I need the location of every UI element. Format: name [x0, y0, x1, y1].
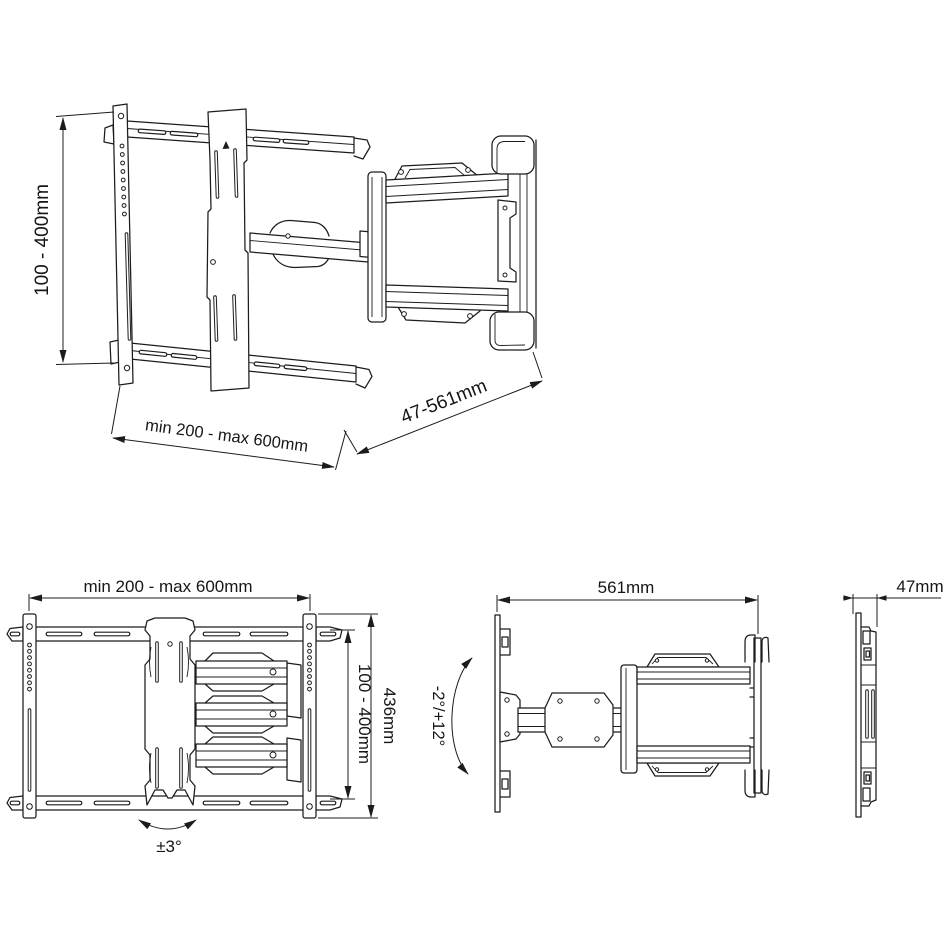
mounting-hole	[307, 804, 313, 810]
rail-end-tab	[356, 367, 372, 388]
dim-label-width-range: min 200 - max 600mm	[144, 416, 309, 456]
arm-link	[287, 663, 301, 718]
clip-detail	[863, 788, 870, 801]
bracket-bar-bottom	[637, 746, 750, 763]
dim-label-height-range: 100 - 400mm	[32, 184, 53, 296]
dim-max-extension: 561mm	[497, 578, 758, 634]
clamp-upper	[270, 220, 329, 236]
wall-mount-dimension-diagram: 100 - 400mm min 200 - max 600mm 47-561mm	[0, 0, 952, 952]
dim-extension-range: 47-561mm	[344, 352, 542, 454]
wall-plate-assembly	[490, 136, 536, 350]
dim-label-swivel: -2°/+12°	[429, 686, 447, 746]
swivel-arm	[518, 665, 637, 773]
clip-detail	[863, 631, 870, 644]
bolt	[286, 234, 290, 238]
wall-rail-bottom	[130, 343, 372, 388]
swivel-annotation: -2°/+12°	[429, 658, 472, 774]
mounting-hole	[307, 624, 313, 630]
wall-rail-top	[127, 121, 370, 159]
arm-column	[368, 172, 386, 322]
arm-link	[498, 200, 516, 282]
arrowhead	[877, 595, 887, 601]
tv-bracket-left	[23, 614, 36, 818]
wall-plate	[495, 615, 520, 812]
dim-label-total-height: 436mm	[380, 688, 399, 745]
arm-bar-top	[386, 173, 508, 203]
tv-bracket-assembly	[637, 635, 769, 797]
dim-label-tilt: ±3°	[156, 837, 182, 856]
wall-plate-edge	[856, 613, 861, 817]
hook-tab	[104, 125, 114, 144]
dim-inner-height: 100 - 400mm	[330, 630, 374, 799]
perspective-view: 100 - 400mm min 200 - max 600mm 47-561mm	[32, 104, 542, 470]
plan-view: 561mm -2°/+12°	[429, 578, 769, 812]
mounting-hole	[124, 365, 129, 370]
mounting-hole	[27, 624, 33, 630]
mounting-hole	[27, 804, 33, 810]
dim-label-extension-range: 47-561mm	[398, 376, 490, 429]
tv-bracket-right	[303, 614, 316, 818]
dim-depth-folded: 47mm	[843, 577, 944, 627]
tilt-annotation: ±3°	[139, 820, 196, 856]
front-view: min 200 - max 600mm 100 - 400mm 436mm ±3…	[7, 577, 399, 856]
center-plate	[207, 109, 249, 391]
arm-link	[287, 738, 301, 782]
arm-joint-plate	[545, 693, 613, 747]
dim-height-range: 100 - 400mm	[32, 112, 114, 365]
center-plate	[145, 618, 195, 805]
mounting-hole	[118, 113, 123, 118]
pivot-bracket	[500, 692, 520, 742]
rail-end-tab	[354, 138, 370, 159]
arrowhead	[844, 595, 854, 601]
bracket-bar-top	[637, 667, 750, 684]
bolt	[211, 260, 216, 265]
articulating-arm	[360, 163, 516, 323]
side-view: 47mm	[843, 577, 944, 817]
dim-label-depth-folded: 47mm	[896, 577, 943, 596]
dim-label-width-range: min 200 - max 600mm	[83, 577, 252, 596]
profile-slots	[867, 691, 873, 737]
tv-bracket-left	[104, 104, 133, 385]
folded-arm-stack	[196, 653, 301, 782]
elbow-column	[621, 665, 637, 773]
arm-bar-bottom	[386, 285, 508, 311]
dim-label-max-extension: 561mm	[598, 578, 655, 597]
diagram-canvas: 100 - 400mm min 200 - max 600mm 47-561mm	[0, 0, 952, 952]
dim-width-range: min 200 - max 600mm	[29, 577, 310, 611]
folded-bracket-profile	[861, 627, 876, 806]
dim-width-range: min 200 - max 600mm	[112, 386, 347, 470]
